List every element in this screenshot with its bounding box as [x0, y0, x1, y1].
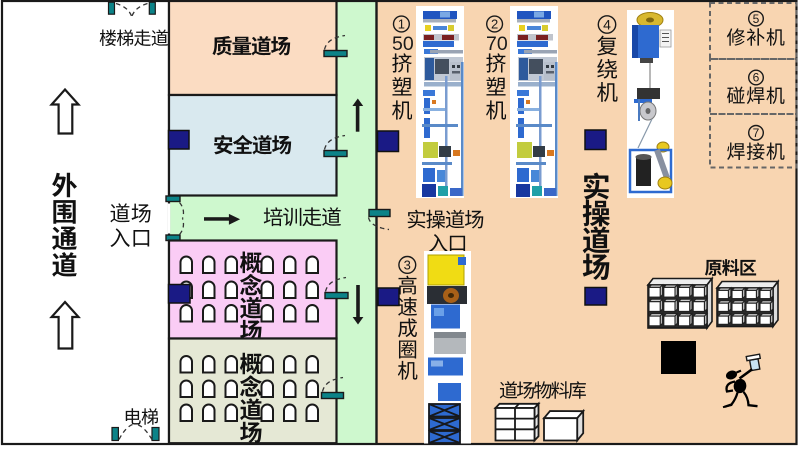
svg-text:4: 4	[603, 16, 611, 32]
svg-text:6: 6	[753, 71, 760, 85]
svg-text:3: 3	[404, 258, 411, 273]
svg-text:5: 5	[753, 12, 760, 26]
svg-text:7: 7	[753, 126, 760, 140]
svg-text:2: 2	[491, 17, 498, 32]
svg-text:50: 50	[392, 33, 414, 55]
svg-text:1: 1	[398, 17, 405, 32]
svg-text:70: 70	[486, 33, 508, 55]
